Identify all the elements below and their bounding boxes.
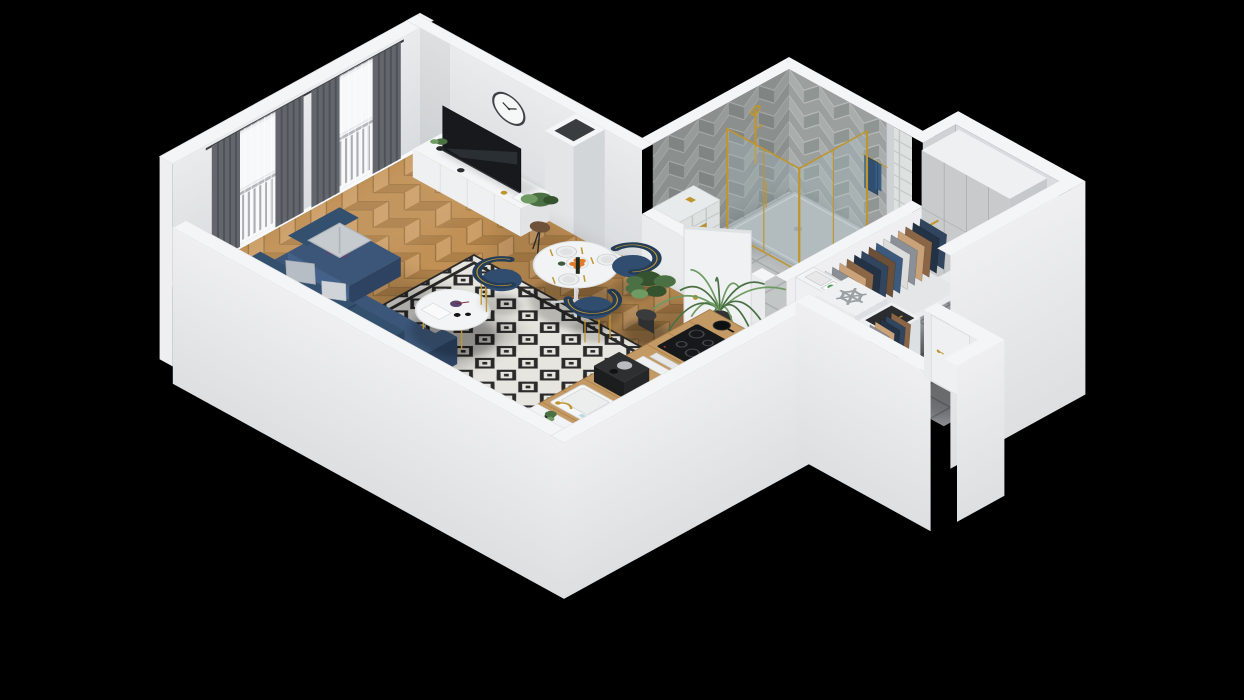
scene-canvas (0, 0, 1244, 700)
apartment-scene (160, 13, 1113, 599)
curtain-panel (373, 42, 401, 174)
sheer-curtain (340, 58, 373, 192)
sheer-curtain (240, 111, 275, 246)
apartment-3d-floorplan (0, 0, 1244, 700)
curtain-panel (275, 95, 303, 227)
corner-pillar (160, 157, 173, 367)
east-wall-ext (957, 340, 1004, 522)
curtain-panel (311, 76, 339, 208)
